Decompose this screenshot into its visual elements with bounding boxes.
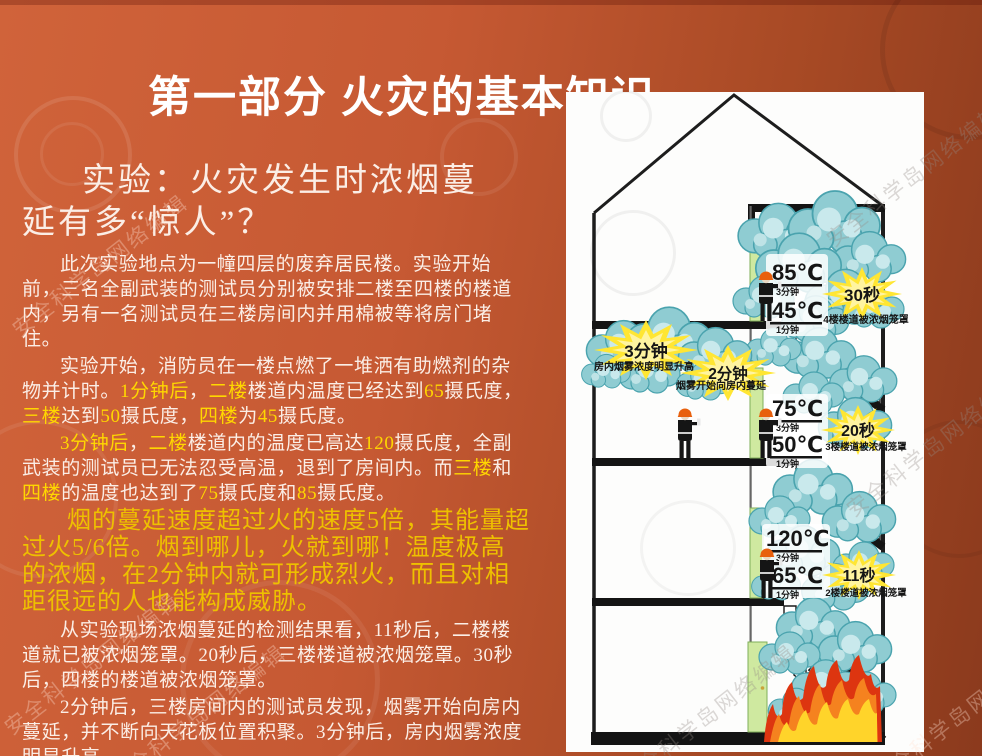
paragraph-segment: 50 [100,406,120,427]
paragraph: 3分钟后，二楼楼道内的温度已高达120摄氏度，全副武装的测试员已无法忍受高温，退… [22,431,530,506]
paragraph-segment: 二楼 [149,433,188,454]
paragraph-segment: 四楼 [22,483,61,504]
paragraph-segment: 此次实验地点为一幢四层的废弃居民楼。实验开始前，三名全副武装的测试员分别被安排二… [22,254,512,350]
burst-3min-label: 3分钟 [624,341,667,361]
floor3-temp-1min: 50℃ [772,432,823,457]
floor3-temp-labels: 75℃ 3分钟 50℃ 1分钟 [766,394,828,469]
floor2-time-1min: 1分钟 [776,589,799,600]
burst-20s-label: 20秒 [841,421,875,440]
paragraph-segment: 为 [238,406,258,427]
floor4-temp-3min: 85℃ [772,260,823,285]
building-smoke-diagram: 85℃ 3分钟 45℃ 1分钟 75℃ 3分钟 50℃ 1分钟 120℃ [566,92,924,752]
paragraph-segment: 的温度也达到了 [61,483,198,504]
paragraph: 烟的蔓延速度超过火的速度5倍，其能量超过火5/6倍。烟到哪儿，火就到哪！温度极高… [22,508,530,616]
paragraph-segment: ， [189,381,209,402]
floor3-time-1min: 1分钟 [776,458,799,469]
paragraph-segment: 三楼 [453,458,492,479]
floor3-temp-3min: 75℃ [772,396,823,421]
diagram-panel: 85℃ 3分钟 45℃ 1分钟 75℃ 3分钟 50℃ 1分钟 120℃ [566,92,924,752]
paragraph-segment: 120 [364,433,394,454]
paragraph-segment: 三楼 [22,406,61,427]
paragraph-segment: 达到 [61,406,100,427]
paragraph-segment: 四楼 [199,406,238,427]
floor4-temp-1min: 45℃ [772,298,823,323]
slide-root: 第一部分 火灾的基本知识 实验：火灾发生时浓烟蔓延有多“惊人”？ 此次实验地点为… [0,0,982,756]
article-heading: 实验：火灾发生时浓烟蔓延有多“惊人”？ [22,160,510,244]
burst-11s-caption: 2楼楼道被浓烟笼罩 [825,587,907,599]
paragraph: 2分钟后，三楼房间内的测试员发现，烟雾开始向房内蔓延，并不断向天花板位置积聚。3… [22,695,530,756]
paragraph-segment: 2分钟后，三楼房间内的测试员发现，烟雾开始向房内蔓延，并不断向天花板位置积聚。3… [22,697,522,756]
paragraph-segment: 摄氏度。 [278,406,356,427]
paragraph-segment: 楼道内温度已经达到 [248,381,424,402]
burst-30s-caption: 4楼楼道被浓烟笼罩 [823,313,909,326]
paragraph: 此次实验地点为一幢四层的废弃居民楼。实验开始前，三名全副武装的测试员分别被安排二… [22,252,530,352]
paragraph-segment: 65 [424,381,444,402]
paragraph: 从实验现场浓烟蔓延的检测结果看，11秒后，二楼楼道就已被浓烟笼罩。20秒后，三楼… [22,618,530,693]
paragraph-segment: 楼道内的温度已高达 [188,433,364,454]
firefighter-floor3-room-icon [678,409,701,459]
paragraph-segment: 烟的蔓延速度超过火的速度5倍，其能量超过火5/6倍。烟到哪儿，火就到哪！温度极高… [22,508,530,615]
paragraph-segment: 85 [297,483,317,504]
paragraph-segment: 摄氏度， [444,381,522,402]
paragraph-segment: 1分钟后 [120,381,189,402]
paragraph-segment: 摄氏度， [121,406,199,427]
paragraph-segment: 和 [492,458,512,479]
paragraph-segment: 二楼 [209,381,248,402]
top-accent-bar [0,0,982,5]
burst-30s-label: 30秒 [844,285,880,305]
paragraph-segment: 从实验现场浓烟蔓延的检测结果看，11秒后，二楼楼道就已被浓烟笼罩。20秒后，三楼… [22,620,513,691]
floor2-temp-1min: 65℃ [772,563,823,588]
burst-20s-caption: 3楼楼道被浓烟笼罩 [825,441,907,453]
floor2-temp-3min: 120℃ [766,526,829,551]
floor4-temp-labels: 85℃ 3分钟 45℃ 1分钟 [766,254,828,336]
burst-2min-caption: 烟雾开始向房内蔓延 [676,379,767,392]
paragraph-segment: 75 [198,483,218,504]
burst-11s-label: 11秒 [843,566,876,585]
paragraph-segment: 摄氏度。 [317,483,395,504]
paragraph-segment: 摄氏度和 [219,483,297,504]
burst-3min-caption: 房内烟雾浓度明显升高 [594,360,694,373]
article-paragraphs: 此次实验地点为一幢四层的废弃居民楼。实验开始前，三名全副武装的测试员分别被安排二… [22,252,530,756]
paragraph-segment: ， [129,433,149,454]
paragraph: 实验开始，消防员在一楼点燃了一堆洒有助燃剂的杂物并计时。1分钟后，二楼楼道内温度… [22,354,530,429]
door-knob [761,686,765,690]
paragraph-segment: 3分钟后 [60,433,129,454]
floor4-time-1min: 1分钟 [776,324,799,335]
paragraph-segment: 45 [258,406,278,427]
